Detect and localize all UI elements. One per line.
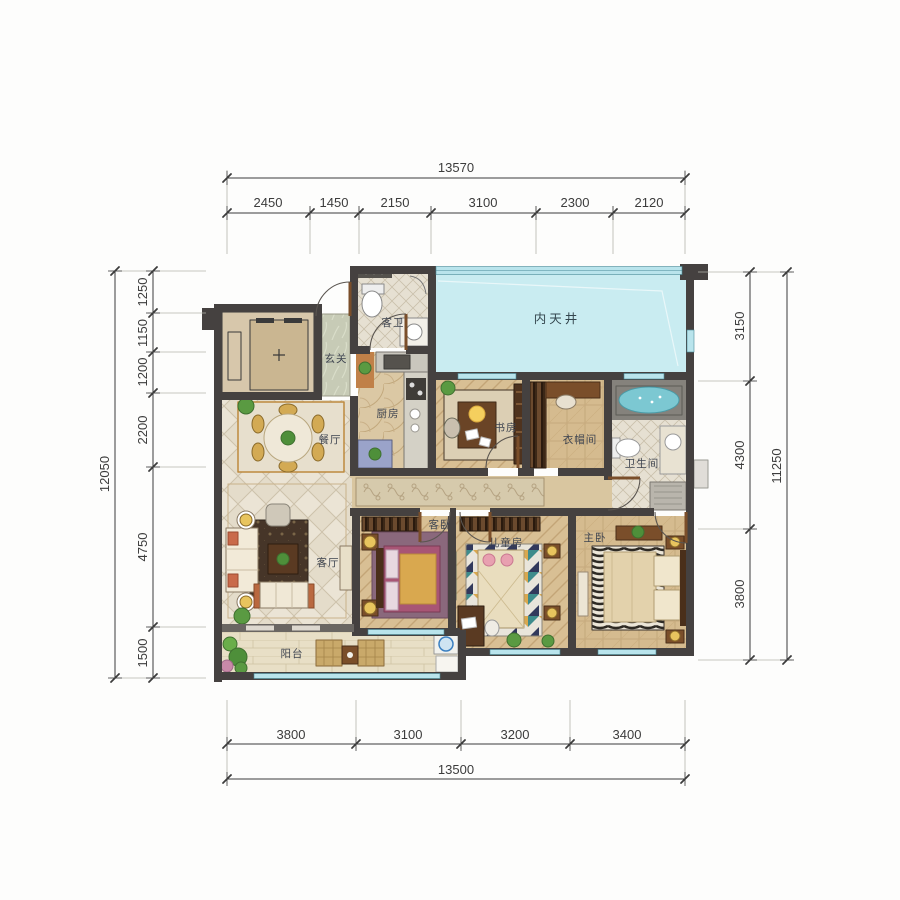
room-label-guest-bedroom: 客卧: [429, 518, 452, 531]
dimensions-top: 13570 2450 1450 2150 3100 2300 2120: [223, 160, 689, 254]
room-label-kids-room: 儿童房: [489, 536, 524, 549]
dim-top-seg-5: 2120: [635, 195, 664, 210]
desk-lamp: [469, 406, 485, 422]
toilet: [616, 439, 640, 457]
desk-chair: [485, 620, 499, 636]
floor-lamp: [240, 596, 252, 608]
bathtub: [619, 387, 679, 413]
room-label-courtyard: 内天井: [534, 311, 581, 326]
floorplan-drawing: 内天井 客卫 玄关 厨房 餐厅 书房 衣帽间 卫生间 客厅 客卧 儿童房 主卧 …: [0, 0, 900, 900]
room-label-balcony: 阳台: [281, 647, 304, 660]
dim-left-seg-3: 2200: [135, 416, 150, 445]
desk-chair: [444, 418, 460, 438]
corridor-runner-rug: [356, 478, 544, 506]
toilet: [362, 291, 382, 317]
wardrobe: [530, 382, 546, 468]
dim-top-seg-0: 2450: [254, 195, 283, 210]
wardrobe: [460, 517, 540, 531]
bench: [578, 572, 588, 616]
dim-right-seg-1: 4300: [732, 441, 747, 470]
cloakroom-shelf: [546, 382, 600, 398]
tv-console: [340, 546, 352, 590]
wardrobe: [362, 517, 420, 531]
pillow: [654, 556, 680, 586]
dimensions-right: 3150 4300 3800 11250: [698, 268, 794, 664]
room-label-study: 书房: [495, 421, 518, 434]
table-lamp: [547, 546, 557, 556]
plant-icon: [507, 633, 521, 647]
dim-top-seg-4: 2300: [561, 195, 590, 210]
floorplan-page: 内天井 客卫 玄关 厨房 餐厅 书房 衣帽间 卫生间 客厅 客卧 儿童房 主卧 …: [0, 0, 900, 900]
dim-bottom-seg-1: 3100: [394, 727, 423, 742]
room-label-master-bedroom: 主卧: [584, 531, 607, 544]
ac-platform: [694, 460, 708, 488]
washing-machine-door-icon: [439, 637, 453, 651]
headboard: [680, 550, 686, 626]
loveseat: [260, 582, 308, 608]
room-label-living: 客厅: [317, 556, 340, 569]
cabinet: [436, 656, 458, 672]
dim-left-seg-2: 1200: [135, 358, 150, 387]
dim-bottom-seg-0: 3800: [277, 727, 306, 742]
dimensions-bottom: 3800 3100 3200 3400 13500: [223, 700, 689, 786]
dim-right-total: 11250: [769, 448, 784, 483]
cloakroom-bench: [556, 395, 576, 409]
dim-left-total: 12050: [97, 456, 112, 492]
room-label-kitchen: 厨房: [377, 407, 400, 420]
dim-top-seg-2: 2150: [381, 195, 410, 210]
balcony-chair: [358, 640, 384, 666]
washbasin: [665, 434, 681, 450]
room-label-master-bath: 卫生间: [625, 457, 660, 470]
plant-icon: [542, 635, 554, 647]
room-label-dining: 餐厅: [319, 433, 342, 446]
dim-left-seg-4: 4750: [135, 533, 150, 562]
plant-icon: [441, 381, 455, 395]
pillow: [501, 554, 513, 566]
dim-top-total: 13570: [438, 160, 474, 175]
armchair: [266, 504, 290, 526]
dimensions-left: 1250 1150 1200 2200 4750 1500 12050: [97, 267, 206, 682]
washbasin: [406, 324, 422, 340]
stove: [406, 378, 426, 400]
dim-bottom-total: 13500: [438, 762, 474, 777]
headboard: [376, 548, 384, 608]
dim-left-seg-0: 1250: [135, 278, 150, 307]
dim-top-seg-1: 1450: [320, 195, 349, 210]
pillow: [654, 590, 680, 620]
table-lamp: [364, 536, 376, 548]
table-lamp: [670, 631, 680, 641]
room-label-guest-bath: 客卫: [382, 316, 405, 329]
kitchen-sink: [384, 355, 410, 369]
elevator: [222, 312, 314, 396]
plant-icon: [234, 608, 250, 624]
plant-icon: [277, 553, 289, 565]
dim-right-seg-2: 3800: [732, 580, 747, 609]
plant-icon: [238, 398, 254, 414]
room-label-foyer: 玄关: [325, 352, 348, 365]
dim-left-seg-1: 1150: [135, 319, 150, 347]
balcony-chair: [316, 640, 342, 666]
table-lamp: [547, 608, 557, 618]
room-label-cloakroom: 衣帽间: [563, 433, 598, 446]
dim-bottom-seg-3: 3400: [613, 727, 642, 742]
plant-icon: [632, 526, 644, 538]
dim-left-seg-5: 1500: [135, 639, 150, 668]
balcony-sliding-door: [222, 624, 354, 632]
dim-right-seg-0: 3150: [732, 312, 747, 341]
dim-top-seg-3: 3100: [469, 195, 498, 210]
plant-icon: [281, 431, 295, 445]
floor-lamp: [240, 514, 252, 526]
plant-icon: [359, 362, 371, 374]
plant-icon: [369, 448, 381, 460]
dim-bottom-seg-2: 3200: [501, 727, 530, 742]
balcony-glass-rail: [254, 674, 440, 679]
pillow: [483, 554, 495, 566]
table-lamp: [364, 602, 376, 614]
